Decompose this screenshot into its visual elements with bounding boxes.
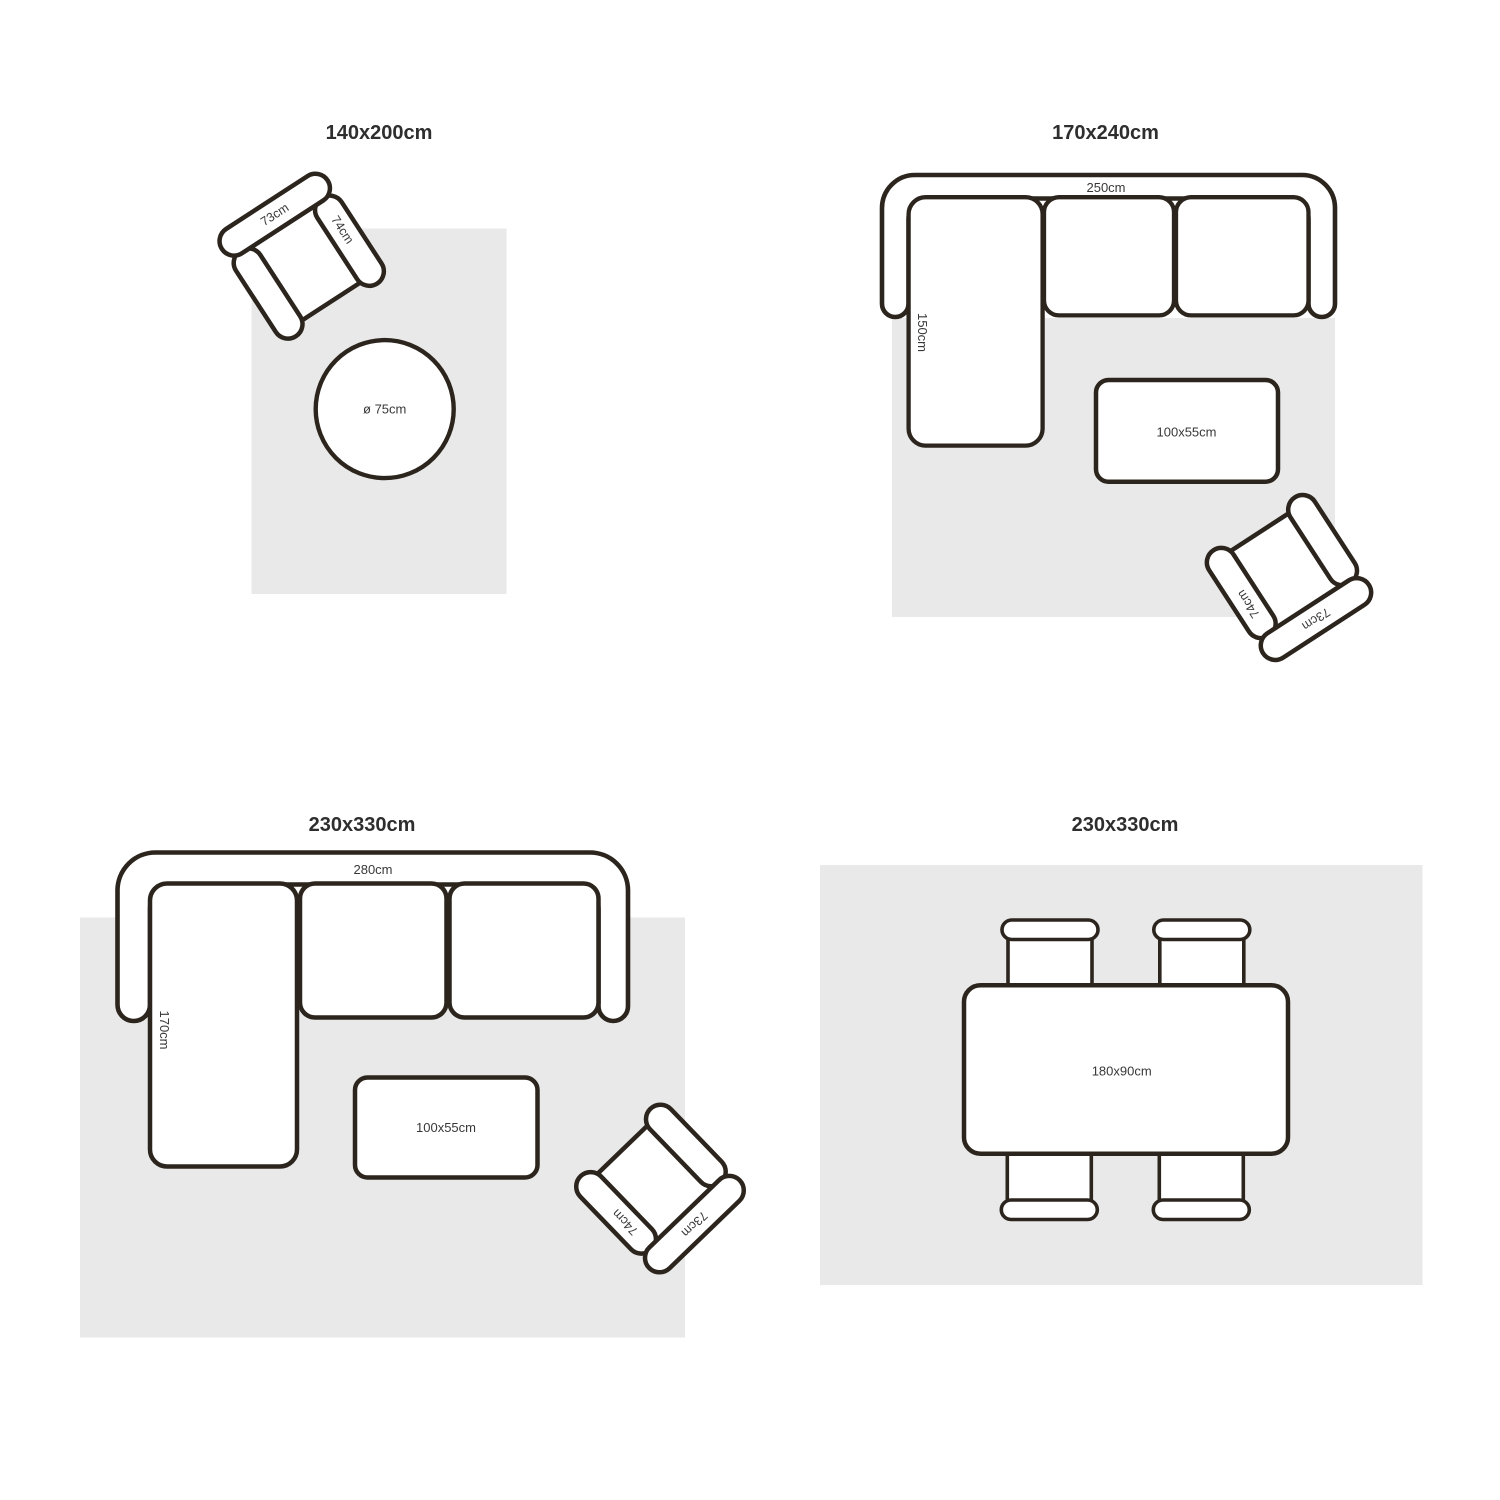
svg-text:280cm: 280cm (353, 862, 392, 877)
svg-text:ø 75cm: ø 75cm (363, 402, 406, 417)
svg-text:150cm: 150cm (915, 313, 930, 352)
svg-text:230x330cm: 230x330cm (309, 814, 416, 836)
svg-text:230x330cm: 230x330cm (1072, 814, 1179, 836)
svg-text:170cm: 170cm (157, 1010, 172, 1049)
svg-text:100x55cm: 100x55cm (416, 1120, 476, 1135)
svg-text:100x55cm: 100x55cm (1157, 425, 1217, 440)
svg-text:170x240cm: 170x240cm (1052, 122, 1159, 144)
svg-text:180x90cm: 180x90cm (1092, 1063, 1152, 1078)
svg-text:250cm: 250cm (1086, 180, 1125, 195)
svg-text:140x200cm: 140x200cm (326, 122, 433, 144)
